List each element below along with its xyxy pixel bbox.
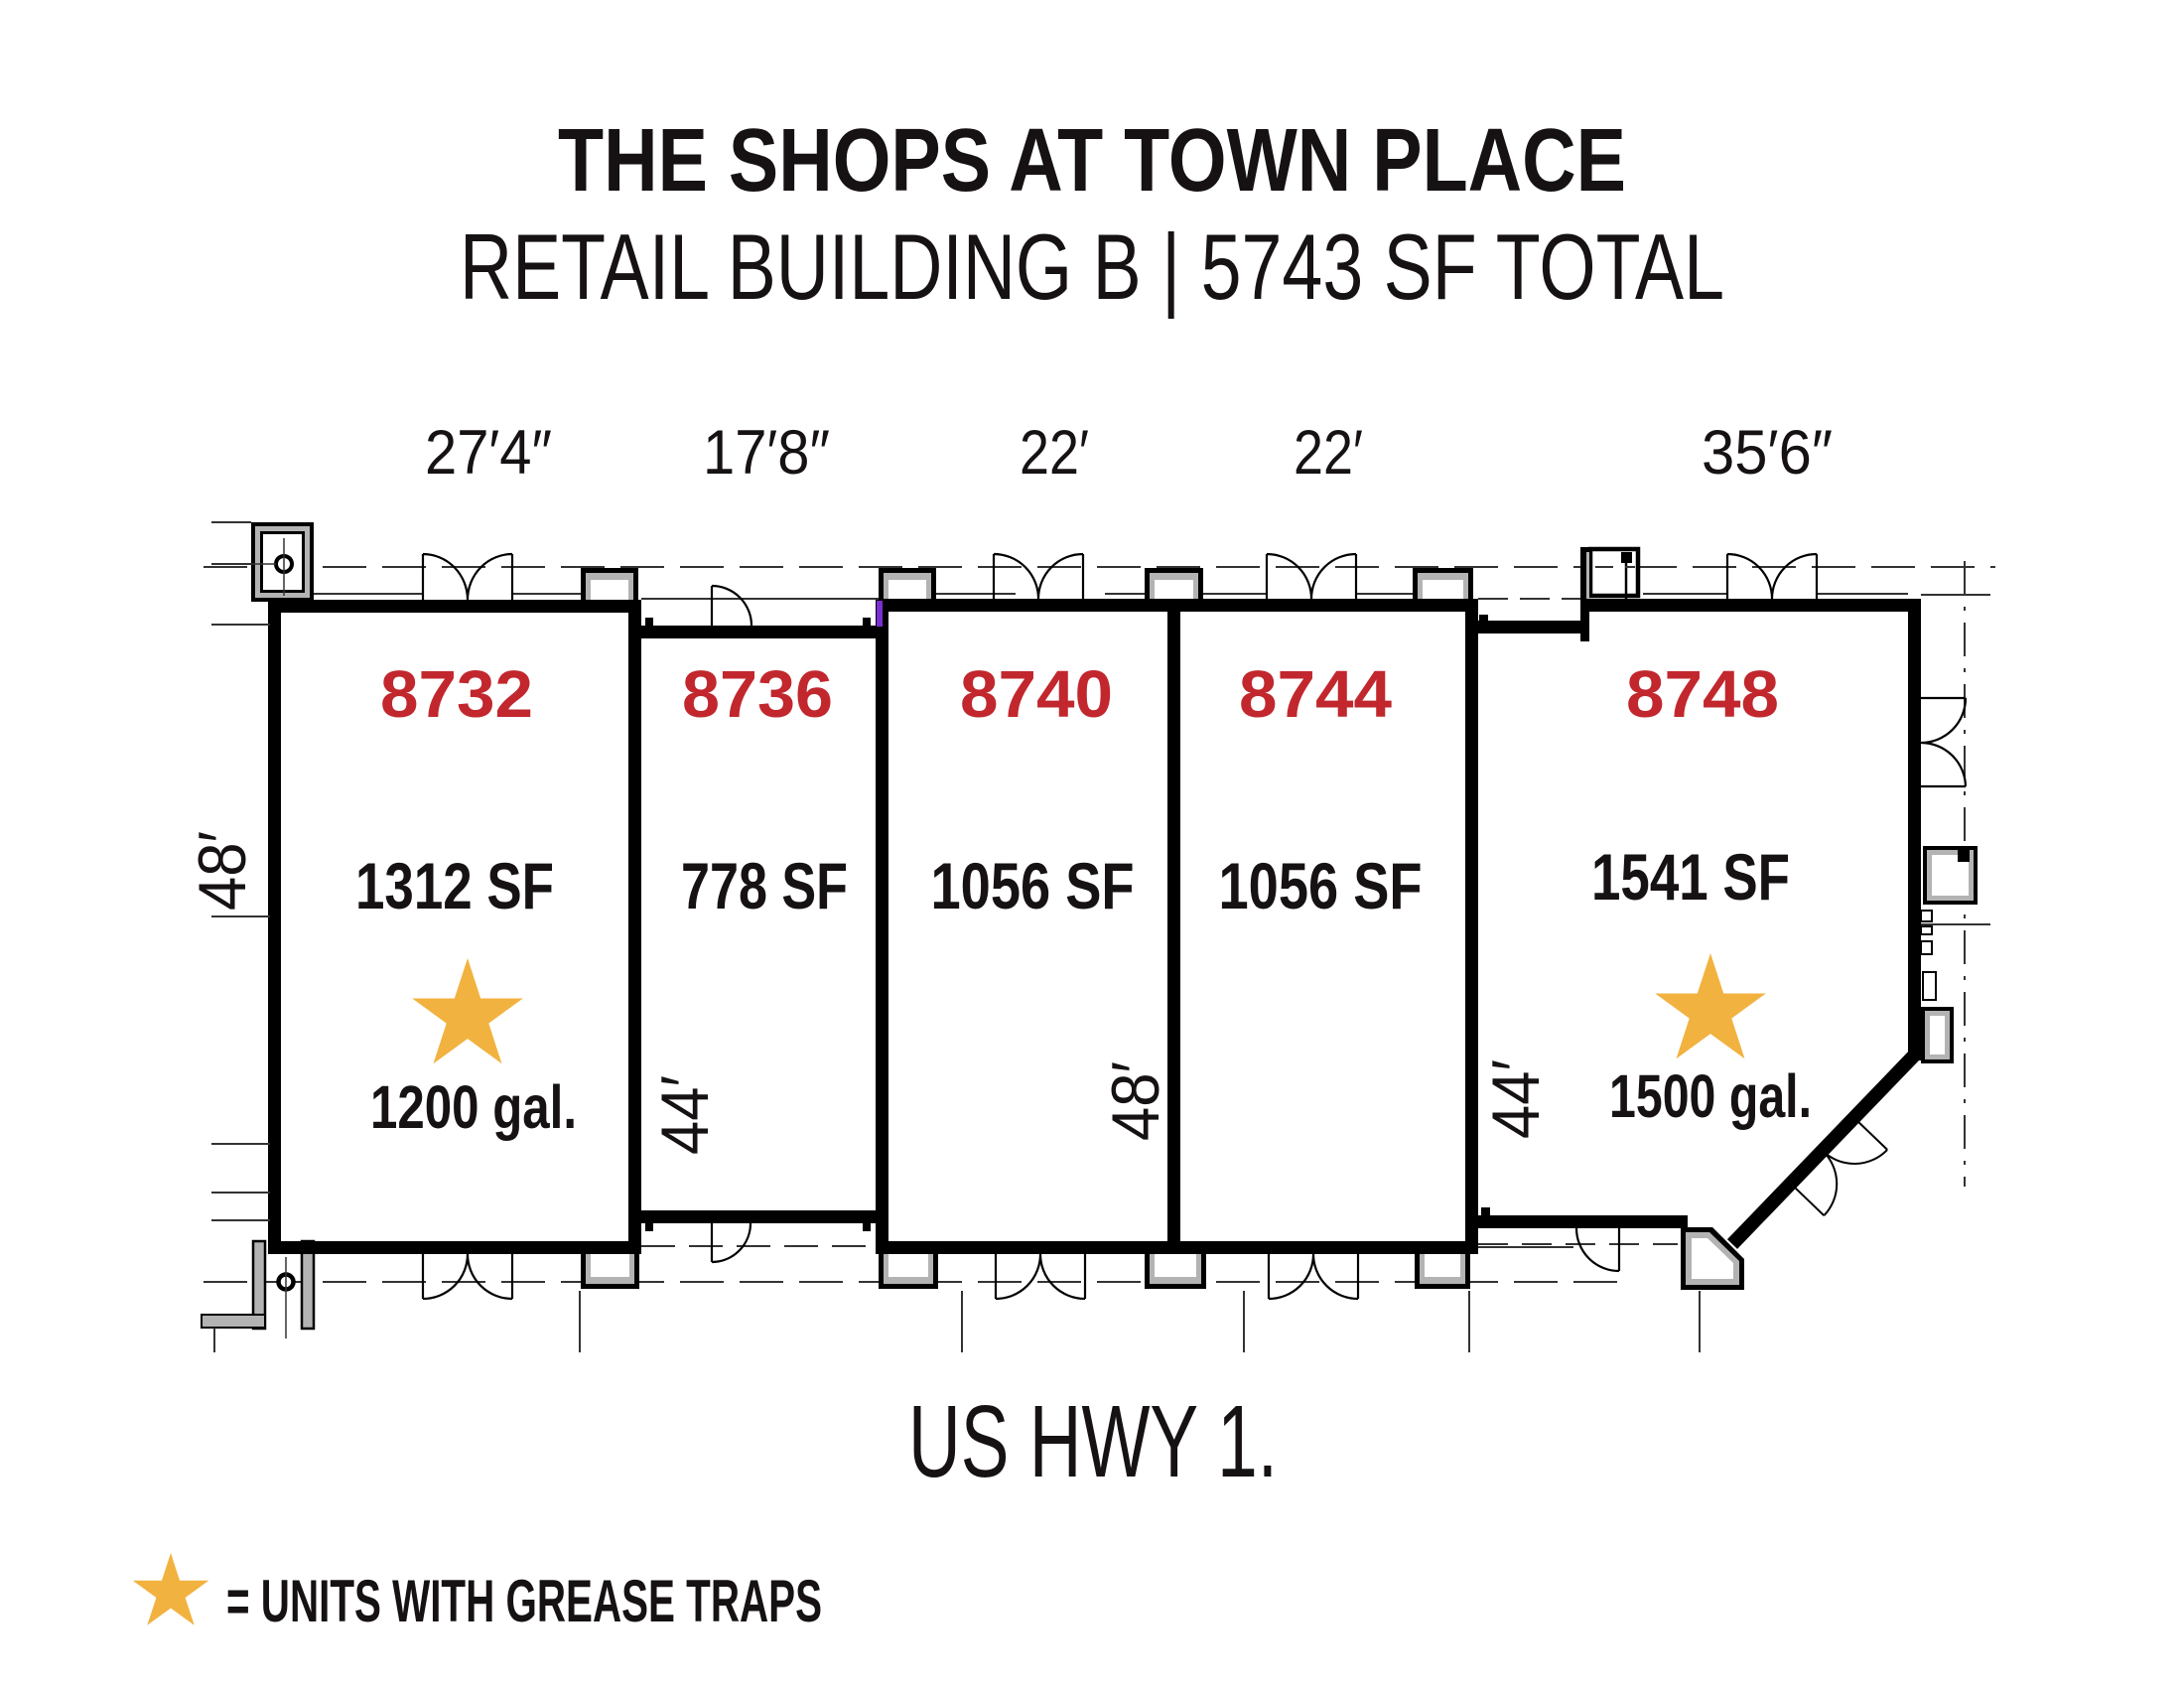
svg-text:1500 gal.: 1500 gal.: [1609, 1062, 1812, 1130]
svg-text:778 SF: 778 SF: [681, 849, 848, 922]
svg-text:THE SHOPS AT TOWN PLACE: THE SHOPS AT TOWN PLACE: [558, 111, 1626, 211]
svg-text:US HWY 1.: US HWY 1.: [908, 1384, 1278, 1498]
svg-text:8732: 8732: [380, 657, 533, 732]
svg-text:35′6″: 35′6″: [1702, 418, 1833, 488]
svg-text:1541 SF: 1541 SF: [1591, 840, 1790, 914]
svg-text:1312 SF: 1312 SF: [355, 849, 554, 922]
svg-text:8736: 8736: [682, 657, 833, 732]
svg-text:48′: 48′: [1098, 1061, 1173, 1141]
svg-text:22′: 22′: [1294, 418, 1363, 488]
svg-text:1056 SF: 1056 SF: [1219, 849, 1423, 922]
svg-text:48′: 48′: [185, 831, 260, 911]
svg-text:8744: 8744: [1239, 657, 1392, 732]
svg-text:22′: 22′: [1020, 418, 1089, 488]
svg-text:8740: 8740: [960, 657, 1113, 732]
svg-text:8748: 8748: [1626, 657, 1779, 732]
svg-text:RETAIL BUILDING B | 5743 SF TO: RETAIL BUILDING B | 5743 SF TOTAL: [460, 214, 1724, 319]
svg-text:17′8″: 17′8″: [703, 418, 830, 488]
svg-text:44′: 44′: [1478, 1059, 1554, 1139]
svg-text:= UNITS WITH GREASE TRAPS: = UNITS WITH GREASE TRAPS: [226, 1568, 822, 1634]
svg-text:27′4″: 27′4″: [425, 418, 552, 488]
svg-text:1056 SF: 1056 SF: [931, 849, 1135, 922]
svg-text:44′: 44′: [647, 1075, 723, 1155]
svg-text:1200 gal.: 1200 gal.: [370, 1073, 577, 1141]
